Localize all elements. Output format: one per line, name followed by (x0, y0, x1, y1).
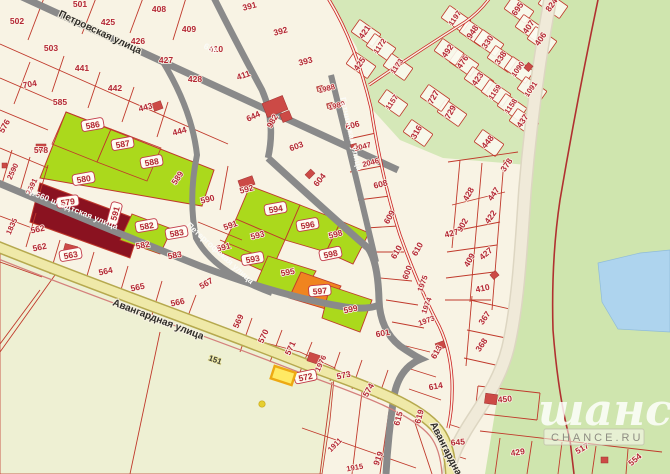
parcel-number: 428 (188, 74, 202, 84)
parcel-label-428: 428 (188, 74, 202, 84)
parcel-number: 645 (450, 436, 465, 447)
parcel-label-441: 441 (75, 63, 89, 73)
parcel-label-450: 450 (497, 393, 512, 404)
parcel-number: 408 (152, 4, 166, 14)
building-icon (2, 163, 7, 168)
parcel-label-502: 502 (10, 16, 24, 26)
parcel-label-409: 409 (182, 24, 196, 34)
building-icon (601, 457, 608, 463)
watermark-script: шанс (538, 385, 670, 436)
parcel-number: 585 (53, 97, 67, 107)
parcel-label-429: 429 (510, 446, 526, 458)
cadastral-map[interactable]: 5025014254084094265034274104414287044425… (0, 0, 670, 474)
parcel-number: 409 (182, 24, 196, 34)
building-icon (484, 393, 497, 405)
parcel-label-427: 427 (159, 55, 173, 65)
parcel-number: 502 (10, 16, 24, 26)
watermark-domain: CHANCE.RU (551, 432, 643, 444)
parcel-label-597: 597 (308, 284, 331, 297)
parcel-number: 503 (44, 43, 58, 53)
parcel-number: 450 (497, 393, 512, 404)
parcel-number: 425 (101, 17, 115, 27)
parcel-number: 501 (73, 0, 87, 9)
parcel-label-578: 578 (34, 145, 48, 155)
parcel-number: 441 (75, 63, 89, 73)
parcel-number: 597 (312, 285, 327, 296)
parcel-label-425: 425 (101, 17, 115, 27)
parcel-label-501: 501 (73, 0, 87, 9)
parcel-number: 578 (34, 145, 48, 155)
parcel-label-442: 442 (108, 83, 122, 93)
cadastral-map-viewport[interactable]: 5025014254084094265034274104414287044425… (0, 0, 670, 474)
parcel-number: 429 (510, 446, 526, 458)
parcel-label-503: 503 (44, 43, 58, 53)
parcel-label-585: 585 (53, 97, 67, 107)
parcel-number: 427 (159, 55, 173, 65)
parcel-label-408: 408 (152, 4, 166, 14)
highlight-dot (259, 401, 265, 407)
parcel-label-645: 645 (450, 436, 465, 447)
parcel-number: 442 (108, 83, 122, 93)
